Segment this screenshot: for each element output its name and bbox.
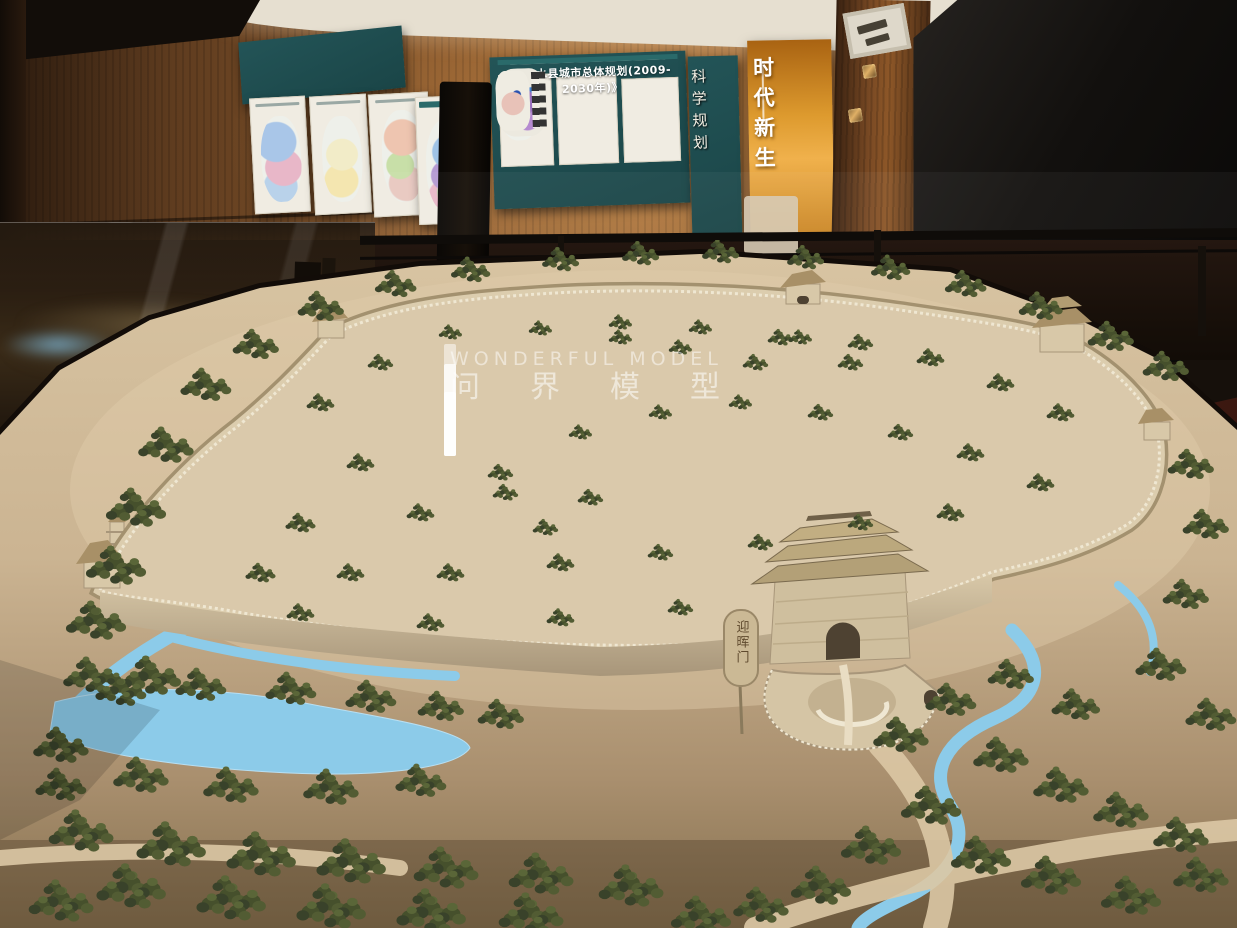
photo-thumbnails [531, 72, 547, 128]
gate-arch [826, 622, 860, 660]
exhibit-hall-photo: 《涟水县城市总体规划(2009-2030年)》 科学规划 [0, 0, 1237, 928]
railing-glass [360, 172, 1237, 236]
gate-plaque-text: 迎晖门 [734, 620, 750, 665]
city-scale-model: 迎晖门 [0, 240, 1237, 928]
watermark-english: WONDERFUL MODEL [450, 348, 723, 370]
science-paragraph [691, 163, 741, 164]
era-slogan: 时代新生 [747, 56, 779, 177]
map-caption [256, 102, 299, 107]
county-map [259, 115, 303, 203]
county-map [320, 115, 364, 203]
science-slogan: 科学规划 [688, 68, 711, 157]
left-wall-edge [0, 0, 26, 256]
map-card-left-1 [249, 96, 311, 215]
map-caption [316, 100, 360, 105]
